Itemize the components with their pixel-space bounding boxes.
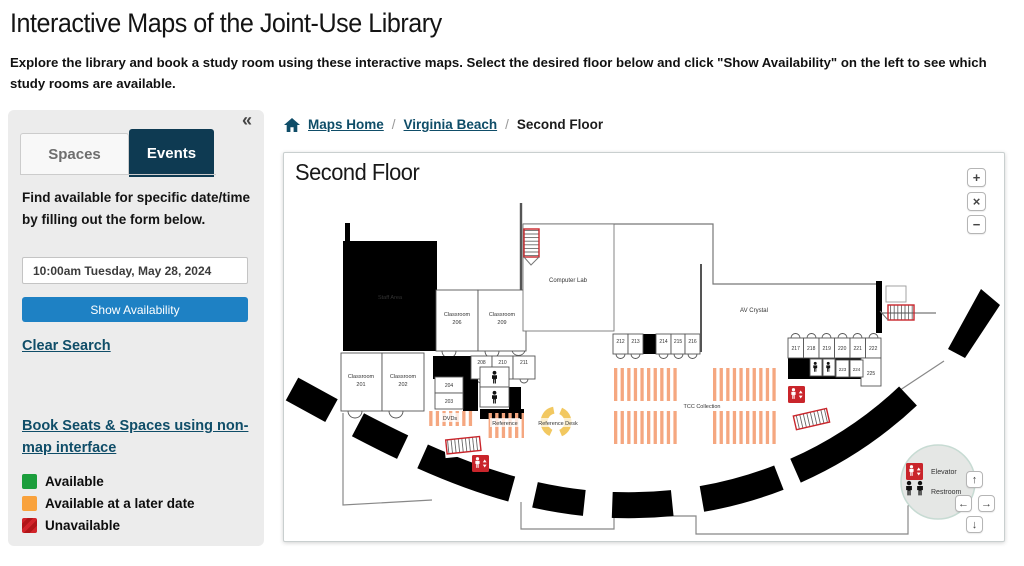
- show-availability-button[interactable]: Show Availability: [22, 297, 248, 322]
- map-title: Second Floor: [295, 159, 419, 186]
- svg-text:224: 224: [853, 367, 861, 372]
- svg-text:204: 204: [445, 383, 454, 389]
- breadcrumb-separator: /: [505, 117, 509, 132]
- pan-down-button[interactable]: ↓: [966, 516, 983, 533]
- svg-text:Classroom: Classroom: [348, 374, 375, 380]
- svg-text:220: 220: [838, 346, 847, 352]
- svg-text:206: 206: [452, 320, 461, 326]
- breadcrumb-maps-home[interactable]: Maps Home: [308, 117, 384, 132]
- svg-text:202: 202: [398, 382, 407, 388]
- tab-events[interactable]: Events: [129, 129, 214, 177]
- legend-available: Available: [22, 474, 104, 489]
- zoom-out-button[interactable]: −: [967, 215, 986, 234]
- svg-text:223: 223: [839, 367, 847, 372]
- page-title: Interactive Maps of the Joint-Use Librar…: [10, 8, 442, 39]
- book-seats-link[interactable]: Book Seats & Spaces using non-map interf…: [22, 415, 254, 460]
- svg-text:219: 219: [823, 346, 832, 352]
- svg-text:203: 203: [445, 399, 454, 405]
- close-map-button[interactable]: ×: [967, 192, 986, 211]
- reference-label: Reference: [492, 421, 517, 427]
- av-crystal-label: AV Crystal: [740, 308, 768, 314]
- clear-search-link[interactable]: Clear Search: [22, 338, 111, 354]
- svg-text:222: 222: [869, 346, 878, 352]
- breadcrumb-separator: /: [392, 117, 396, 132]
- svg-text:Classroom: Classroom: [489, 312, 516, 318]
- breadcrumb: Maps Home / Virginia Beach / Second Floo…: [284, 117, 603, 132]
- unavailable-label: Unavailable: [45, 518, 120, 533]
- room-row-212-216: [613, 334, 700, 354]
- svg-text:213: 213: [631, 339, 640, 345]
- elevator-icon: [788, 386, 805, 403]
- floorplan-svg: Staff Area Classroom 206 Classroom 209 C…: [284, 153, 1006, 543]
- zoom-in-button[interactable]: +: [967, 168, 986, 187]
- svg-text:218: 218: [807, 346, 816, 352]
- stairs-icon: [790, 405, 833, 433]
- svg-text:201: 201: [356, 382, 365, 388]
- svg-text:225: 225: [867, 371, 876, 377]
- tab-spaces[interactable]: Spaces: [20, 133, 129, 174]
- collapse-sidebar-icon[interactable]: «: [242, 110, 252, 131]
- computer-lab-label: Computer Lab: [549, 278, 588, 284]
- svg-text:214: 214: [659, 339, 668, 345]
- svg-text:215: 215: [674, 339, 683, 345]
- availability-sidebar: « Spaces Events Find available for speci…: [8, 110, 264, 546]
- pan-right-button[interactable]: →: [978, 495, 995, 512]
- unavailable-swatch: [22, 518, 37, 533]
- later-date-swatch: [22, 496, 37, 511]
- available-swatch: [22, 474, 37, 489]
- stairs-icon: [880, 286, 914, 320]
- svg-text:216: 216: [688, 339, 697, 345]
- svg-text:210: 210: [498, 360, 507, 366]
- tcc-collection-label: TCC Collection: [684, 404, 721, 410]
- elevator-icon: [906, 463, 923, 480]
- svg-text:Classroom: Classroom: [444, 312, 471, 318]
- home-icon: [284, 118, 300, 132]
- elevator-icon: [472, 455, 489, 472]
- reference-desk-label: Reference Desk: [538, 421, 578, 427]
- svg-text:211: 211: [520, 360, 528, 366]
- later-date-label: Available at a later date: [45, 496, 195, 511]
- page-subtitle: Explore the library and book a study roo…: [10, 52, 1012, 95]
- elevator-legend-label: Elevator: [931, 469, 957, 476]
- svg-text:221: 221: [854, 346, 863, 352]
- datetime-input[interactable]: [22, 257, 248, 284]
- available-label: Available: [45, 474, 104, 489]
- map-panel: Staff Area Classroom 206 Classroom 209 C…: [283, 152, 1005, 542]
- pan-up-button[interactable]: ↑: [966, 471, 983, 488]
- legend-unavailable: Unavailable: [22, 518, 120, 533]
- dvds-label: DVDs: [443, 416, 458, 422]
- staff-area-label: Staff Area: [378, 295, 403, 301]
- tabs-underline: [20, 174, 216, 175]
- wall-wedge-right: [948, 289, 1000, 358]
- stairs-icon: [443, 434, 485, 458]
- svg-text:217: 217: [792, 346, 801, 352]
- breadcrumb-current-floor: Second Floor: [517, 117, 603, 132]
- breadcrumb-virginia-beach[interactable]: Virginia Beach: [404, 117, 498, 132]
- svg-text:209: 209: [497, 320, 506, 326]
- svg-text:Classroom: Classroom: [390, 374, 417, 380]
- sidebar-intro-text: Find available for specific date/time by…: [22, 187, 254, 230]
- svg-text:208: 208: [477, 360, 486, 366]
- legend-later-date: Available at a later date: [22, 496, 195, 511]
- pan-left-button[interactable]: ←: [955, 495, 972, 512]
- svg-text:212: 212: [616, 339, 625, 345]
